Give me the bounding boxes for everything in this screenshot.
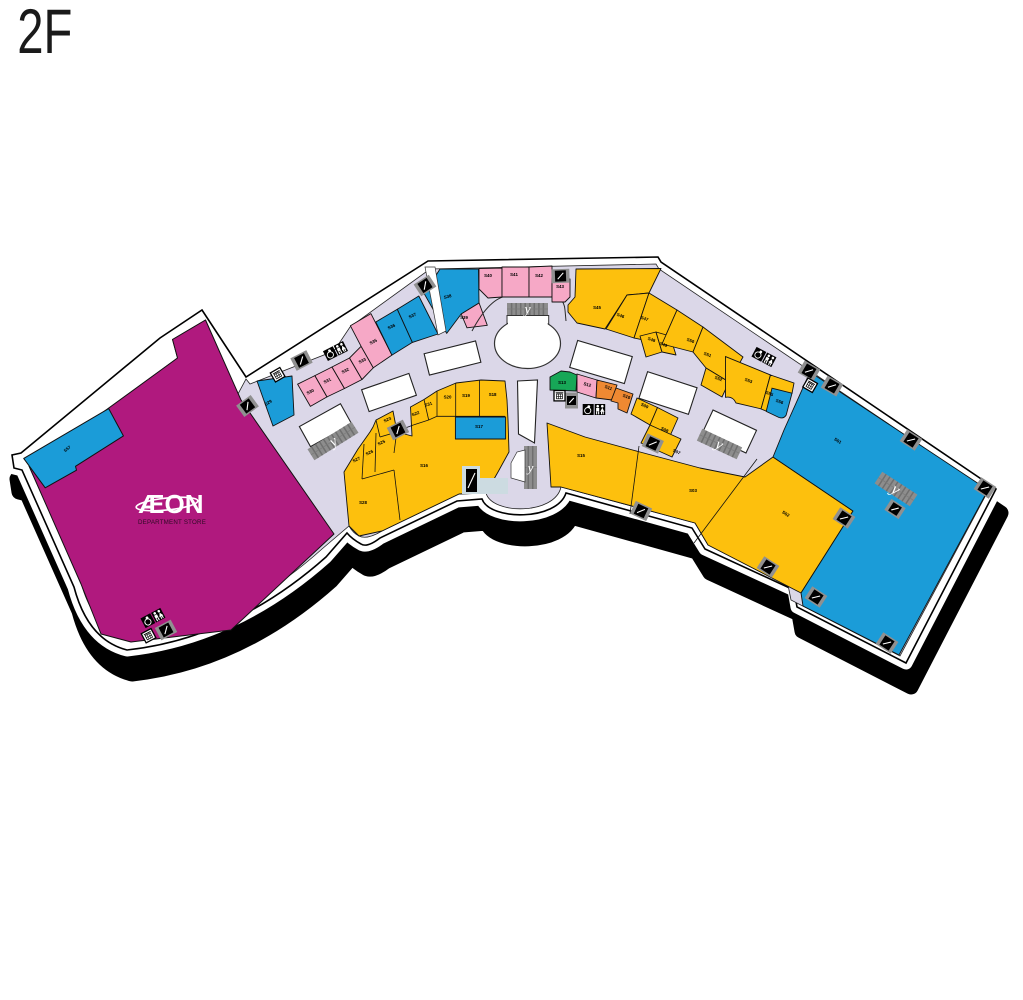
svg-text:S19: S19 xyxy=(462,393,470,398)
svg-text:S43: S43 xyxy=(556,284,564,289)
svg-text:S03: S03 xyxy=(689,488,697,493)
svg-text:S39: S39 xyxy=(460,315,468,320)
svg-text:S15: S15 xyxy=(577,453,585,458)
svg-text:S16: S16 xyxy=(420,463,428,468)
svg-text:S17: S17 xyxy=(475,424,483,429)
svg-text:y: y xyxy=(522,302,531,317)
svg-text:S45: S45 xyxy=(593,305,601,310)
svg-text:S41: S41 xyxy=(510,272,518,277)
svg-text:y: y xyxy=(526,460,534,475)
svg-text:S28: S28 xyxy=(359,500,367,505)
svg-text:DEPARTMENT STORE: DEPARTMENT STORE xyxy=(138,519,206,526)
svg-text:S40: S40 xyxy=(484,273,492,278)
svg-text:S13: S13 xyxy=(558,380,566,385)
svg-text:S42: S42 xyxy=(535,273,543,278)
svg-text:S20: S20 xyxy=(444,395,452,400)
svg-text:S18: S18 xyxy=(489,392,497,397)
svg-text:2F: 2F xyxy=(17,0,72,67)
